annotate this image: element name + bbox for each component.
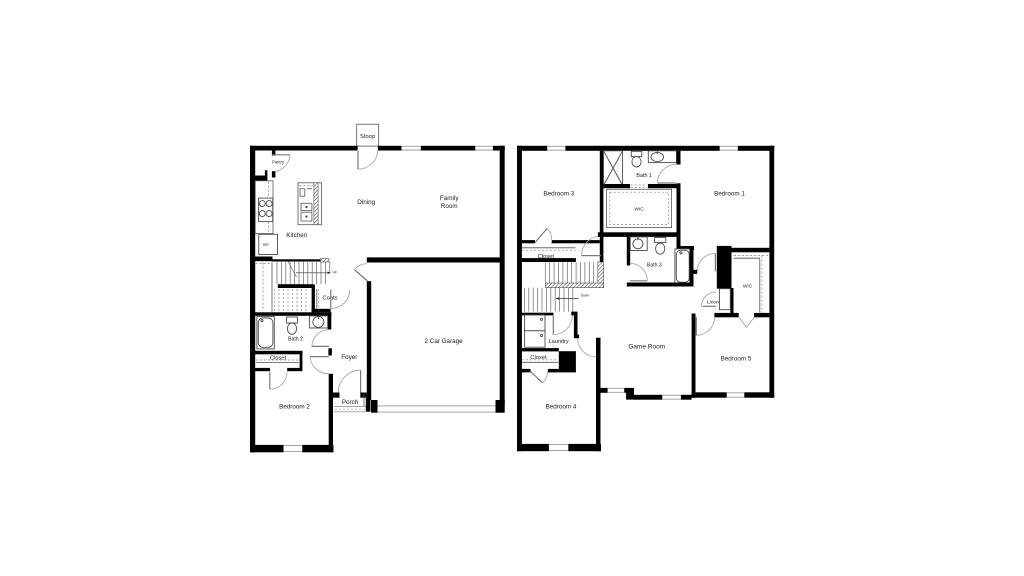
- svg-text:Stoop: Stoop: [360, 134, 375, 140]
- svg-text:Pantry: Pantry: [272, 159, 285, 164]
- svg-text:Bedroom 4: Bedroom 4: [546, 404, 577, 411]
- svg-text:Coats: Coats: [322, 295, 337, 301]
- svg-text:Linen: Linen: [707, 300, 719, 306]
- svg-text:WIC: WIC: [634, 206, 644, 212]
- svg-text:Laundry: Laundry: [548, 339, 568, 345]
- svg-text:REF: REF: [263, 243, 269, 247]
- svg-text:Bath 2: Bath 2: [288, 336, 303, 342]
- svg-text:Bedroom 5: Bedroom 5: [721, 356, 752, 363]
- svg-text:Game Room: Game Room: [628, 343, 665, 350]
- svg-text:WIC: WIC: [743, 284, 753, 290]
- svg-text:Closet: Closet: [270, 355, 287, 361]
- svg-text:Room: Room: [441, 203, 458, 210]
- svg-text:Closet: Closet: [530, 355, 547, 361]
- svg-text:Bedroom 2: Bedroom 2: [279, 404, 310, 411]
- svg-text:Bath 1: Bath 1: [636, 173, 652, 179]
- svg-text:Bedroom 3: Bedroom 3: [543, 191, 574, 198]
- svg-text:Dining: Dining: [357, 199, 375, 206]
- svg-text:Foyer: Foyer: [341, 354, 357, 361]
- svg-text:Kitchen: Kitchen: [286, 232, 308, 239]
- svg-text:Down: Down: [581, 294, 590, 298]
- svg-text:Bath 3: Bath 3: [647, 263, 662, 269]
- svg-text:Up: Up: [333, 270, 337, 274]
- svg-text:Bedroom 1: Bedroom 1: [714, 191, 745, 198]
- svg-text:Family: Family: [440, 195, 459, 202]
- svg-text:Porch: Porch: [342, 399, 359, 406]
- svg-text:2 Car Garage: 2 Car Garage: [425, 338, 464, 345]
